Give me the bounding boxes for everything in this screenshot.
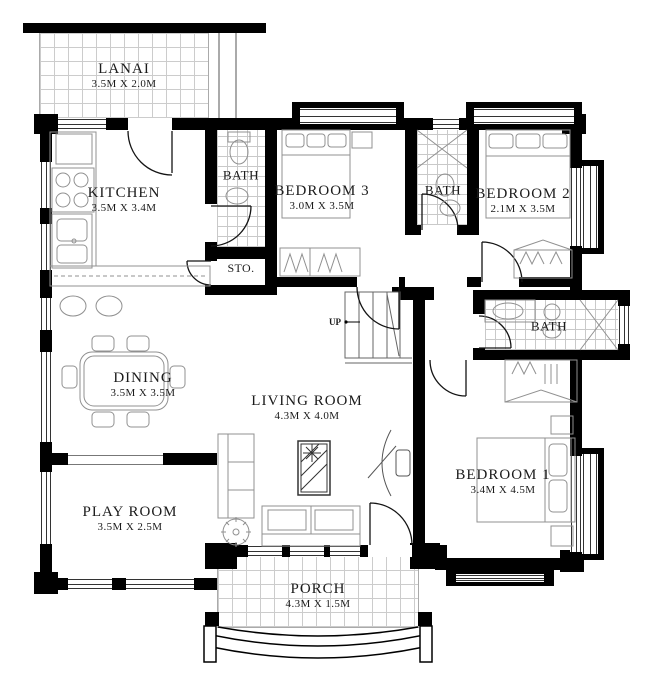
room-name: KITCHEN (88, 185, 161, 202)
door-arc-bath-mid (422, 194, 458, 230)
label-dining: DINING 3.5M X 3.5M (111, 370, 176, 400)
room-name: BATH (531, 320, 567, 335)
room-name: BATH (223, 169, 259, 184)
door-arc-bath-top (211, 206, 251, 246)
stair-direction: UP (329, 317, 341, 327)
room-name: BATH (425, 184, 461, 199)
door-arc-bedroom1 (430, 360, 466, 396)
label-sto: STO. (227, 262, 254, 276)
bedroom1-furniture (477, 360, 577, 546)
room-name: PORCH (286, 581, 351, 598)
room-dims: 3.5M X 2.5M (83, 521, 178, 534)
room-name: BEDROOM 3 (274, 183, 369, 200)
bath-mid-fixtures (417, 130, 467, 216)
door-arc-lanai (128, 131, 172, 175)
label-bedroom2: BEDROOM 2 2.1M X 3.5M (475, 186, 570, 216)
label-bedroom1: BEDROOM 1 3.4M X 4.5M (455, 467, 550, 497)
living-furniture (218, 430, 410, 547)
label-bath-mid: BATH (425, 184, 461, 199)
room-dims: 3.5M X 3.5M (111, 387, 176, 400)
label-playroom: PLAY ROOM 3.5M X 2.5M (83, 504, 178, 534)
room-name: BEDROOM 2 (475, 186, 570, 203)
label-porch: PORCH 4.3M X 1.5M (286, 581, 351, 611)
room-dims: 3.0M X 3.5M (274, 200, 369, 213)
label-lanai: LANAI 3.5M X 2.0M (92, 61, 157, 91)
room-dims: 3.4M X 4.5M (455, 484, 550, 497)
room-name: LIVING ROOM (251, 393, 362, 410)
kitchen-fixtures (50, 132, 210, 316)
door-arc-bedroom2 (482, 242, 522, 282)
label-bath-master: BATH (531, 320, 567, 335)
lanai-roof-lines (219, 33, 236, 118)
door-arc-bath-master (479, 316, 511, 348)
room-dims: 4.3M X 1.5M (286, 598, 351, 611)
room-name: DINING (111, 370, 176, 387)
label-bedroom3: BEDROOM 3 3.0M X 3.5M (274, 183, 369, 213)
room-name: PLAY ROOM (83, 504, 178, 521)
room-name: LANAI (92, 61, 157, 78)
label-kitchen: KITCHEN 3.5M X 3.4M (88, 185, 161, 215)
room-name: BEDROOM 1 (455, 467, 550, 484)
door-arc-sto (187, 261, 211, 285)
room-name: STO. (227, 262, 254, 276)
floor-plan-canvas: LANAI 3.5M X 2.0M KITCHEN 3.5M X 3.4M BA… (0, 0, 653, 700)
label-bath-top: BATH (223, 169, 259, 184)
room-dims: 4.3M X 4.0M (251, 410, 362, 423)
room-dims: 3.5M X 2.0M (92, 78, 157, 91)
label-living: LIVING ROOM 4.3M X 4.0M (251, 393, 362, 423)
label-stairs-up: UP (329, 317, 341, 327)
room-dims: 3.5M X 3.4M (88, 202, 161, 215)
room-dims: 2.1M X 3.5M (475, 203, 570, 216)
staircase (344, 292, 412, 363)
door-arc-front (370, 503, 412, 545)
porch-steps (204, 626, 432, 662)
